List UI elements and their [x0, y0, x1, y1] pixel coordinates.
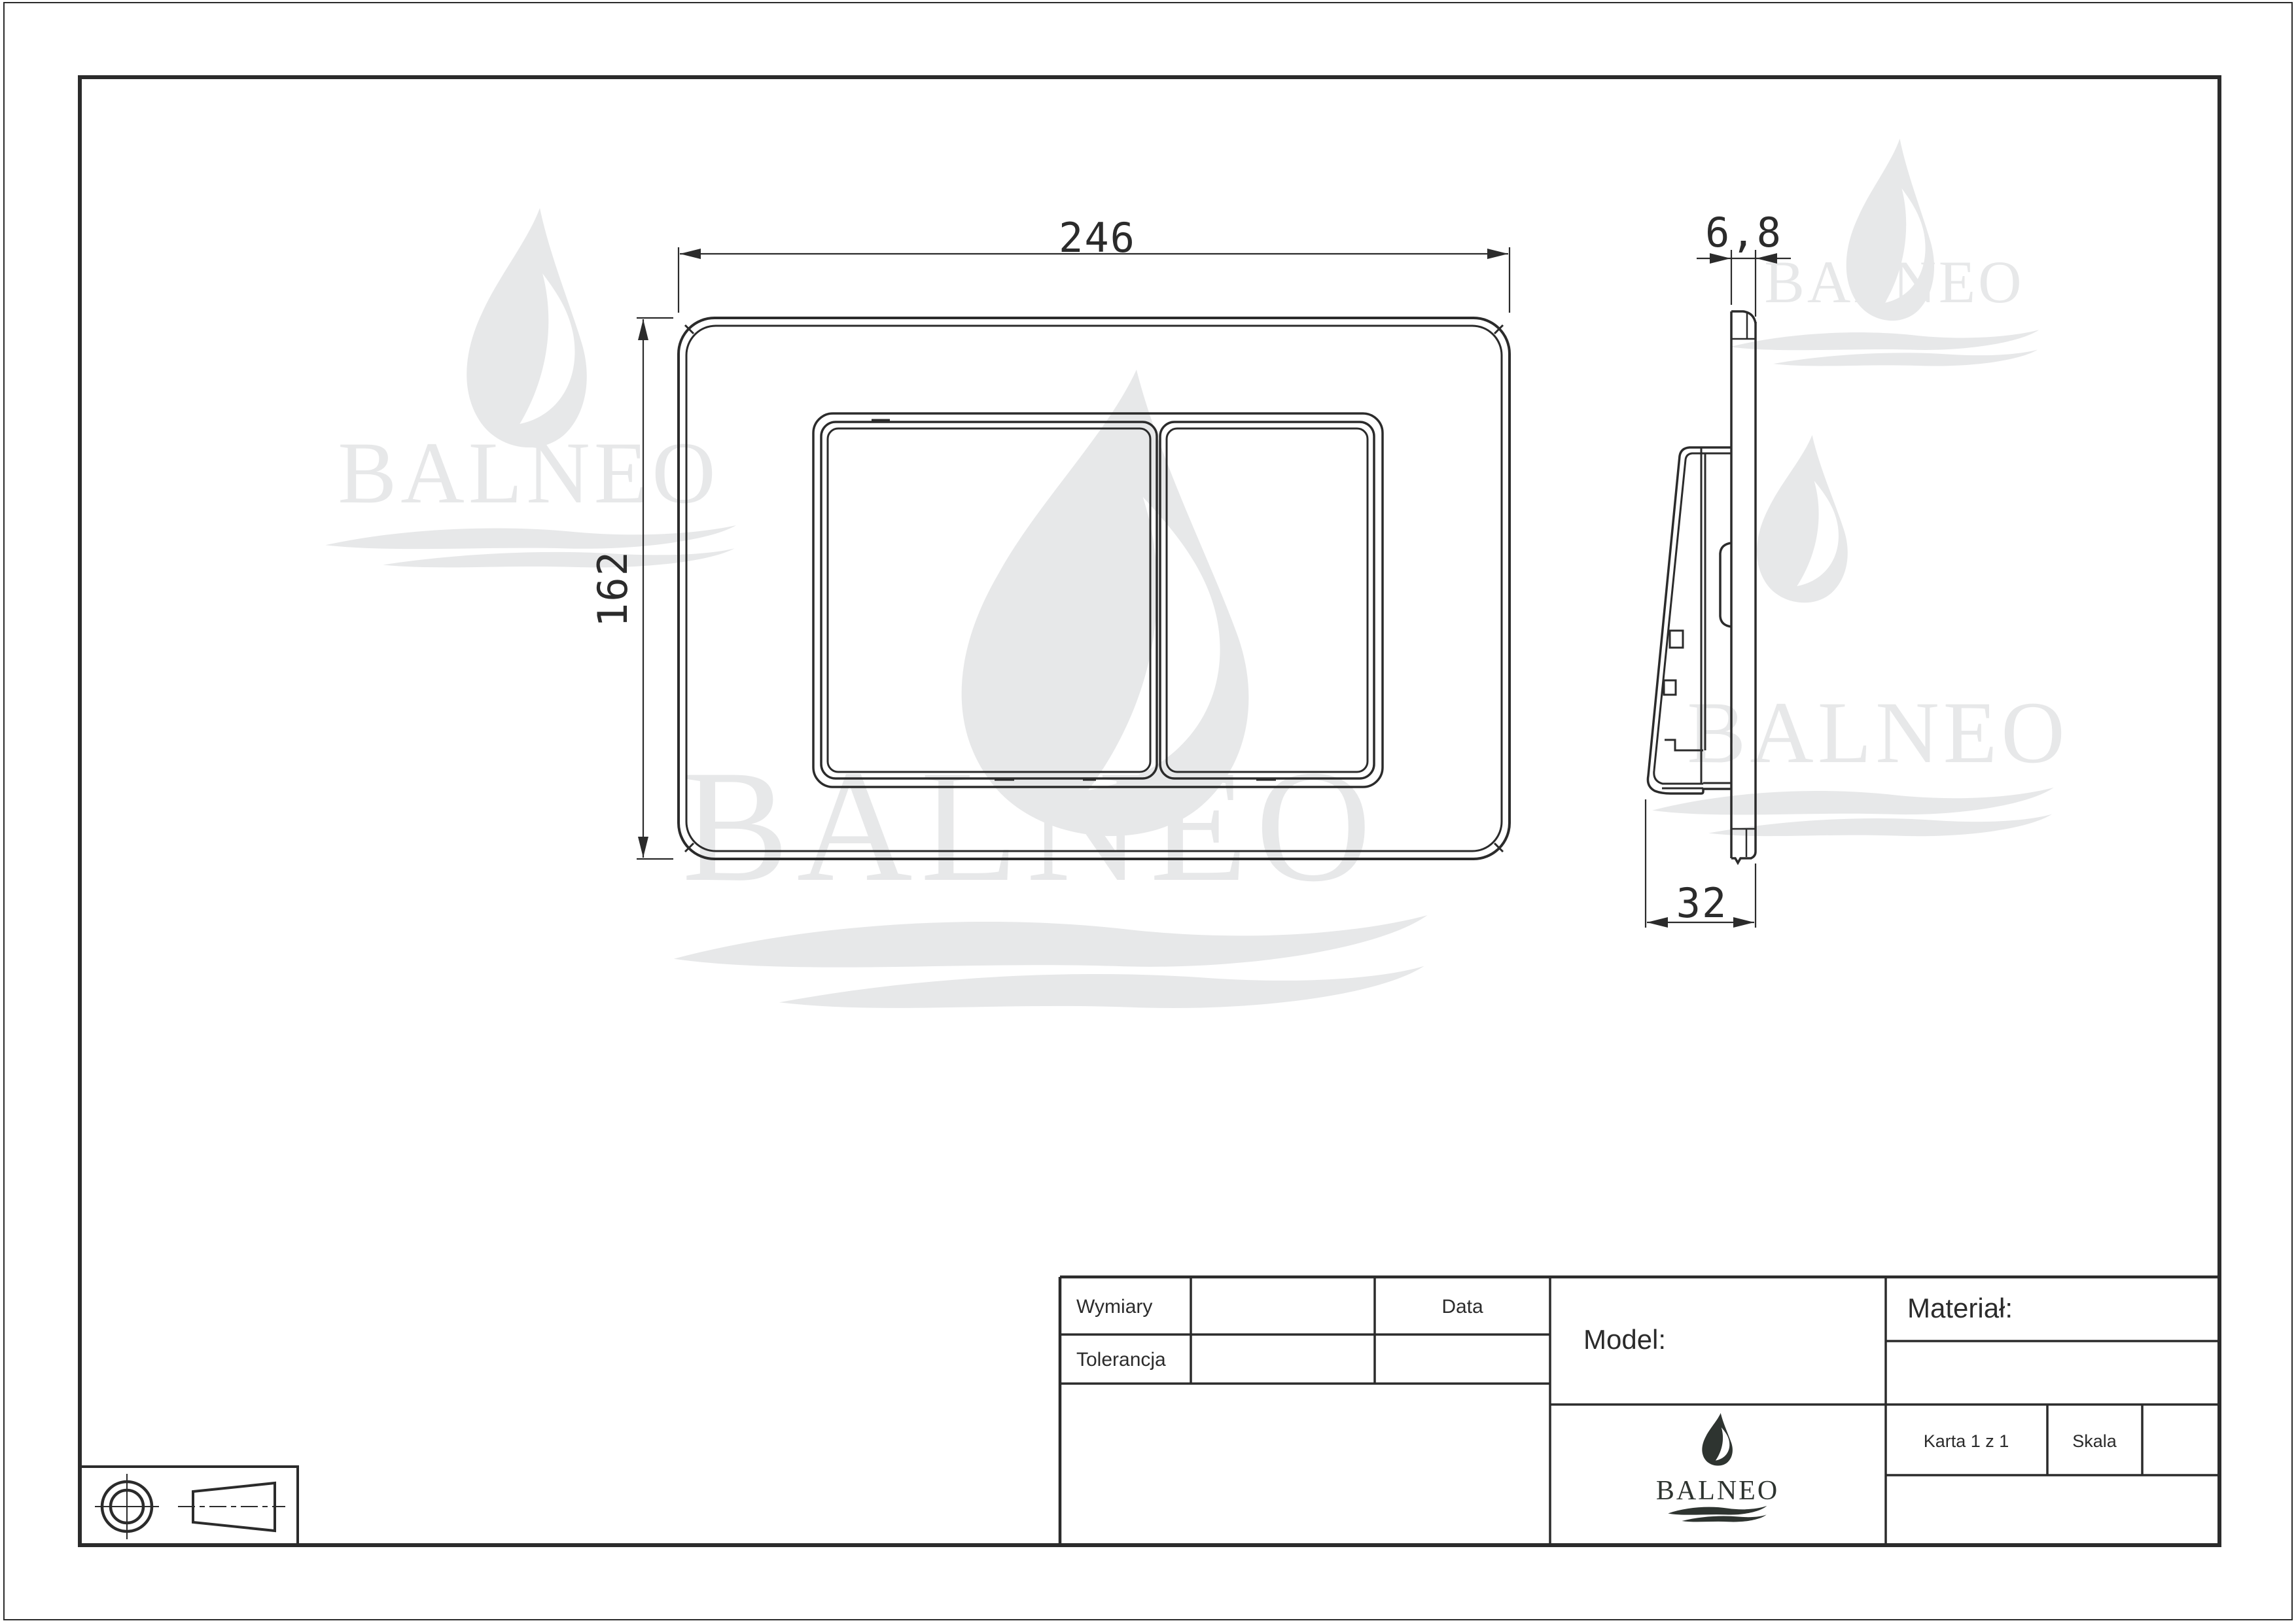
watermark-layer: BALNEO BALNEO BALNEO BALNEO	[325, 139, 2068, 1008]
title-block-outline	[1060, 1277, 2219, 1545]
title-block-texts: Wymiary Tolerancja Data Model: Materiał:…	[1076, 1293, 2117, 1451]
dim-162-extension-lines	[637, 318, 673, 859]
arrow-icon	[680, 249, 701, 259]
drawing-sheet: BALNEO BALNEO BALNEO BALNEO	[0, 0, 2296, 1623]
watermark-brand-text: BALNEO	[338, 425, 719, 522]
watermark-waves-icon	[1730, 330, 2039, 366]
material-label: Materiał:	[1907, 1293, 2013, 1323]
watermark-brand-text: BALNEO	[1764, 249, 2024, 315]
side-frame-tab	[1670, 631, 1683, 648]
watermark-waves-icon	[325, 525, 736, 567]
dim-height-value: 162	[589, 550, 637, 627]
arrow-icon	[1647, 917, 1668, 928]
arrow-icon	[638, 319, 648, 340]
logo-flame-icon	[1702, 1413, 1733, 1466]
projection-symbol	[80, 1467, 298, 1545]
logo-waves-icon	[1668, 1506, 1767, 1522]
model-label: Model:	[1583, 1324, 1666, 1355]
watermark-flame-icon	[1757, 435, 1848, 602]
dim-thickness-value: 6,8	[1705, 209, 1782, 256]
logo-brand-text: BALNEO	[1656, 1476, 1779, 1506]
dim-depth-value: 32	[1676, 879, 1728, 927]
tolerancja-label: Tolerancja	[1076, 1349, 1166, 1370]
side-frame-tab	[1664, 680, 1676, 695]
dim-68-extension-lines	[1731, 250, 1756, 317]
arrow-icon	[1487, 249, 1508, 259]
watermark-brand-text: BALNEO	[682, 737, 1379, 915]
title-block	[1060, 1277, 2219, 1545]
watermark-waves-icon	[1652, 788, 2054, 836]
side-button-profile	[1720, 543, 1731, 627]
company-logo: BALNEO	[1656, 1413, 1779, 1522]
karta-label: Karta 1 z 1	[1924, 1431, 2009, 1451]
dim-width-value: 246	[1059, 214, 1136, 262]
wymiary-label: Wymiary	[1076, 1296, 1152, 1318]
data-label: Data	[1441, 1296, 1483, 1318]
watermark-waves-icon	[674, 915, 1428, 1008]
arrow-icon	[1733, 917, 1754, 928]
side-plate-bottom-edge	[1731, 858, 1752, 863]
arrow-icon	[638, 837, 648, 858]
skala-label: Skala	[2072, 1431, 2117, 1451]
watermark-brand-text: BALNEO	[1687, 684, 2068, 782]
side-plate-top-edge	[1731, 311, 1756, 323]
watermark-flame-icon	[467, 208, 587, 447]
title-block-grid	[1060, 1277, 2219, 1545]
projection-crosshair	[95, 1474, 159, 1539]
